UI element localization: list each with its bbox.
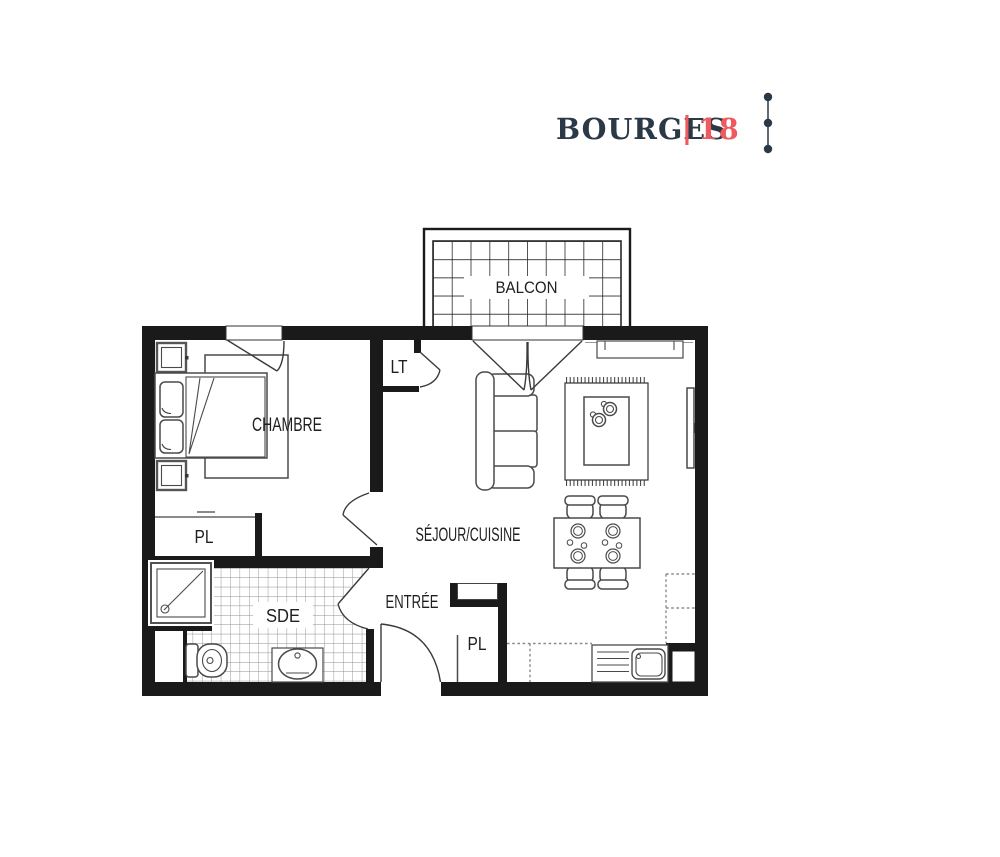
- header-separator: |: [682, 111, 693, 146]
- bathroom-label: SDE: [266, 606, 300, 626]
- nightstand-top: [157, 343, 189, 372]
- bedroom-closet: [155, 512, 255, 517]
- sofa: [476, 372, 537, 490]
- balcony-label: BALCON: [496, 278, 558, 297]
- radiator: [597, 341, 683, 358]
- dots-ornament-icon: [764, 93, 772, 153]
- bedroom-window: [226, 326, 282, 340]
- living-kitchen-label: SÉJOUR/CUISINE: [416, 525, 521, 546]
- nightstand-bottom: [157, 461, 189, 490]
- chair: [565, 566, 595, 589]
- balcony-door-opening: [472, 326, 583, 340]
- toilet: [186, 644, 227, 677]
- kitchen: [458, 574, 696, 682]
- chair: [598, 496, 628, 519]
- entry-door-opening: [381, 682, 441, 696]
- bedroom-label: CHAMBRE: [252, 415, 322, 436]
- entry-closet-label: PL: [468, 634, 487, 654]
- shower: [148, 560, 214, 626]
- chair: [598, 566, 628, 589]
- living-furniture: [476, 341, 701, 589]
- bathroom-niche: [155, 631, 183, 682]
- corner-duct: [672, 651, 695, 682]
- bedroom-door: [343, 493, 377, 545]
- kitchen-sink-unit: [592, 645, 668, 682]
- coffee-table: [584, 397, 629, 465]
- floor-plan: BOURGES | 18: [0, 0, 1000, 857]
- bathroom-sink: [272, 648, 323, 682]
- lt-closet-label: LT: [391, 357, 408, 377]
- entry-closet-top-box: [458, 584, 498, 600]
- pillow: [160, 382, 183, 417]
- pillow: [160, 420, 183, 453]
- tall-unit-outline: [666, 574, 695, 643]
- bedroom-closet-label: PL: [195, 527, 214, 547]
- lt-closet-door: [420, 352, 440, 387]
- entry-door: [381, 624, 441, 682]
- header-number: 18: [698, 112, 740, 146]
- entry-label: ENTRÉE: [386, 592, 439, 612]
- chair: [565, 496, 595, 519]
- header: BOURGES | 18: [556, 93, 772, 153]
- counter-outline: [507, 644, 592, 683]
- dining-set: [554, 496, 640, 589]
